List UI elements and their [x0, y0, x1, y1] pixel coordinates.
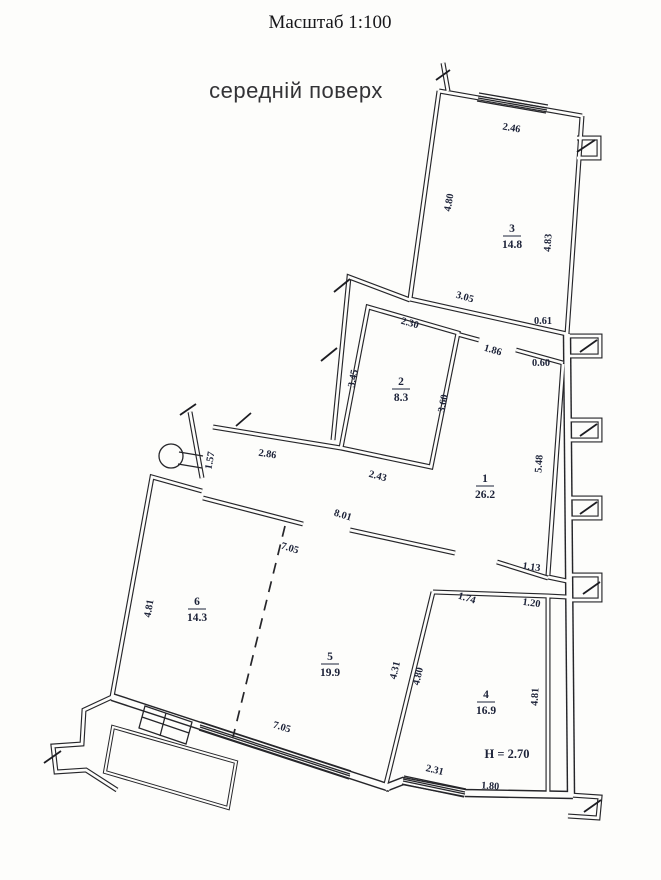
room-area: 26.2 — [475, 489, 495, 501]
room-label: 314.8 — [502, 223, 522, 251]
dimension-label: 7.05 — [280, 541, 300, 557]
room-number: 4 — [483, 689, 489, 701]
room-number: 1 — [482, 473, 488, 485]
dimension-label: 3.05 — [455, 290, 475, 306]
room-label: 614.3 — [187, 596, 207, 624]
dashed-partition — [233, 526, 285, 737]
dimension-label: 1.57 — [204, 451, 218, 471]
dimension-label: 5.48 — [533, 454, 545, 473]
floor-plan-page: Масштаб 1:100 середній поверх 126.228.33… — [0, 0, 661, 880]
room-number: 5 — [327, 651, 333, 663]
dimension-label: 4.80 — [443, 193, 457, 213]
room-number: 6 — [194, 596, 200, 608]
dimension-label: 2.86 — [258, 448, 278, 462]
dimension-label: 7.05 — [272, 720, 292, 736]
dimension-label: 2.31 — [425, 763, 445, 778]
room-number: 3 — [509, 223, 515, 235]
dimension-label: 4.31 — [388, 660, 403, 680]
dimension-label: 3.45 — [346, 369, 360, 389]
dimension-labels: 2.464.804.833.050.611.860.602.303.453.60… — [143, 122, 555, 793]
room-area: 19.9 — [320, 667, 340, 679]
drawing-subtitle: середній поверх — [209, 78, 383, 103]
dimension-label: 3.60 — [436, 394, 450, 414]
room-area: 16.9 — [476, 705, 496, 717]
walls — [53, 63, 600, 818]
dimension-label: 1.86 — [483, 343, 503, 359]
dimension-label: 4.81 — [143, 599, 157, 619]
dimension-label: 0.61 — [534, 316, 552, 327]
dimension-label: H = 2.70 — [485, 747, 530, 761]
drawing-title: Масштаб 1:100 — [268, 12, 391, 33]
dimension-label: 4.81 — [530, 688, 542, 707]
room-label: 519.9 — [320, 651, 340, 679]
room-area: 8.3 — [394, 392, 409, 404]
room-number: 2 — [398, 376, 404, 388]
room-area: 14.8 — [502, 239, 522, 251]
dimension-label: 8.01 — [333, 508, 353, 524]
room-label: 28.3 — [392, 376, 410, 404]
dimension-label: 2.30 — [400, 316, 420, 332]
room-area: 14.3 — [187, 612, 207, 624]
dimension-label: 0.60 — [532, 358, 550, 369]
dimension-label: 1.20 — [522, 597, 541, 610]
dimension-label: 2.46 — [502, 122, 522, 136]
dimension-label: 1.80 — [481, 780, 500, 792]
dimension-label: 2.43 — [368, 469, 388, 484]
column-circle — [159, 444, 183, 468]
room-label: 416.9 — [476, 689, 496, 717]
floor-plan-canvas: Масштаб 1:100 середній поверх 126.228.33… — [0, 0, 661, 880]
room-label: 126.2 — [475, 473, 495, 501]
dimension-label: 4.83 — [542, 233, 554, 252]
